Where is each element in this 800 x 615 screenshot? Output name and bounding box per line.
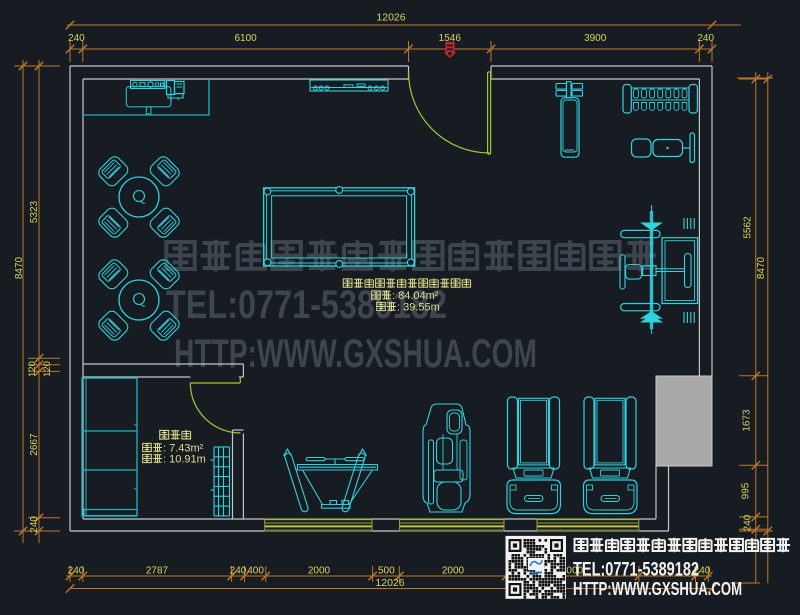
svg-text:120: 120 (27, 361, 38, 377)
svg-text:6100: 6100 (234, 33, 257, 44)
svg-text:240: 240 (230, 566, 247, 577)
svg-text:: 10.91m: : 10.91m (163, 454, 206, 466)
svg-text:3900: 3900 (584, 33, 607, 44)
svg-text:500: 500 (378, 566, 395, 577)
svg-text:5323: 5323 (29, 200, 40, 223)
svg-text:5562: 5562 (743, 216, 754, 239)
svg-text:2667: 2667 (29, 433, 40, 456)
svg-text:12026: 12026 (375, 577, 404, 589)
svg-text:240: 240 (697, 33, 714, 44)
svg-text:240: 240 (743, 514, 754, 531)
svg-text:400: 400 (247, 566, 264, 577)
svg-text:12026: 12026 (376, 12, 405, 24)
svg-text:: 39.55m: : 39.55m (397, 302, 440, 314)
svg-text:1673: 1673 (742, 409, 753, 432)
svg-text:2787: 2787 (146, 566, 169, 577)
svg-text:2000: 2000 (442, 566, 465, 577)
svg-text:HTTP:WWW.GXSHUA.COM: HTTP:WWW.GXSHUA.COM (573, 578, 742, 599)
svg-text:2000: 2000 (308, 566, 331, 577)
svg-text:120: 120 (42, 361, 53, 377)
svg-text:8470: 8470 (756, 256, 767, 279)
svg-text:: 84.04m²: : 84.04m² (392, 290, 439, 302)
svg-text:240: 240 (68, 566, 85, 577)
svg-text:995: 995 (741, 482, 752, 499)
svg-text:8470: 8470 (14, 256, 25, 279)
svg-text:HTTP:WWW.GXSHUA.COM: HTTP:WWW.GXSHUA.COM (174, 332, 537, 376)
svg-text:240: 240 (68, 33, 85, 44)
svg-text:240: 240 (29, 516, 40, 533)
